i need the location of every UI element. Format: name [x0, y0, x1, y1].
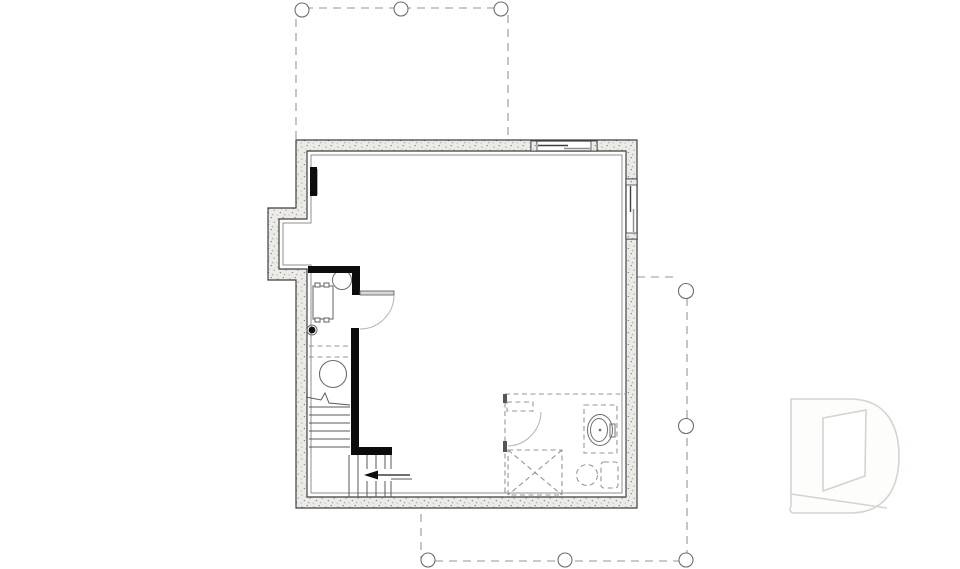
top-wall-window: [531, 141, 597, 151]
furnace-icon: [313, 283, 333, 322]
future-bathroom: [503, 394, 626, 497]
interior-furring-line: [283, 155, 622, 493]
shower-icon: [508, 450, 562, 495]
stair-bottom-wall: [351, 447, 392, 455]
utility-room-side-wall-lower: [351, 328, 359, 448]
water-heater-icon: [333, 271, 352, 290]
utility-room-door: [360, 291, 394, 329]
future-door-leaf: [507, 402, 533, 411]
floor-drain-icon: [307, 325, 317, 335]
floorplan-page: [0, 0, 960, 569]
door-swing-arc: [360, 295, 394, 329]
deck-post-icon: [494, 2, 508, 16]
deck-post-icon: [679, 553, 693, 567]
deck-post-icon: [679, 284, 694, 299]
utility-room-side-wall-upper: [352, 266, 360, 295]
pressure-tank-icon: [320, 361, 347, 388]
utility-room: [307, 167, 352, 388]
deck-post-icon: [394, 2, 408, 16]
windows: [531, 141, 637, 239]
deck-post-icon: [421, 553, 435, 567]
electrical-panel-icon: [310, 167, 317, 196]
right-wall-window: [626, 179, 637, 239]
future-door-swing-arc: [508, 412, 541, 446]
builder-d-logo-watermark: [790, 399, 899, 513]
side-deck-outline: [421, 277, 694, 567]
upper-deck-outline: [295, 2, 508, 139]
floorplan-drawing: [0, 0, 960, 569]
exterior-walls: [268, 140, 637, 508]
toilet-icon: [577, 462, 619, 488]
door-jamb-stub: [503, 394, 507, 403]
stair-break-line: [306, 393, 350, 405]
deck-post-icon: [558, 553, 572, 567]
concrete-wall-band: [268, 140, 637, 508]
upper-deck-dashed-edge: [296, 8, 508, 139]
deck-post-icon: [295, 3, 309, 17]
door-jamb-stub: [503, 441, 507, 452]
door-leaf: [360, 291, 394, 295]
vanity-sink-icon: [584, 405, 617, 453]
deck-post-icon: [679, 419, 694, 434]
stairs: [306, 393, 413, 497]
